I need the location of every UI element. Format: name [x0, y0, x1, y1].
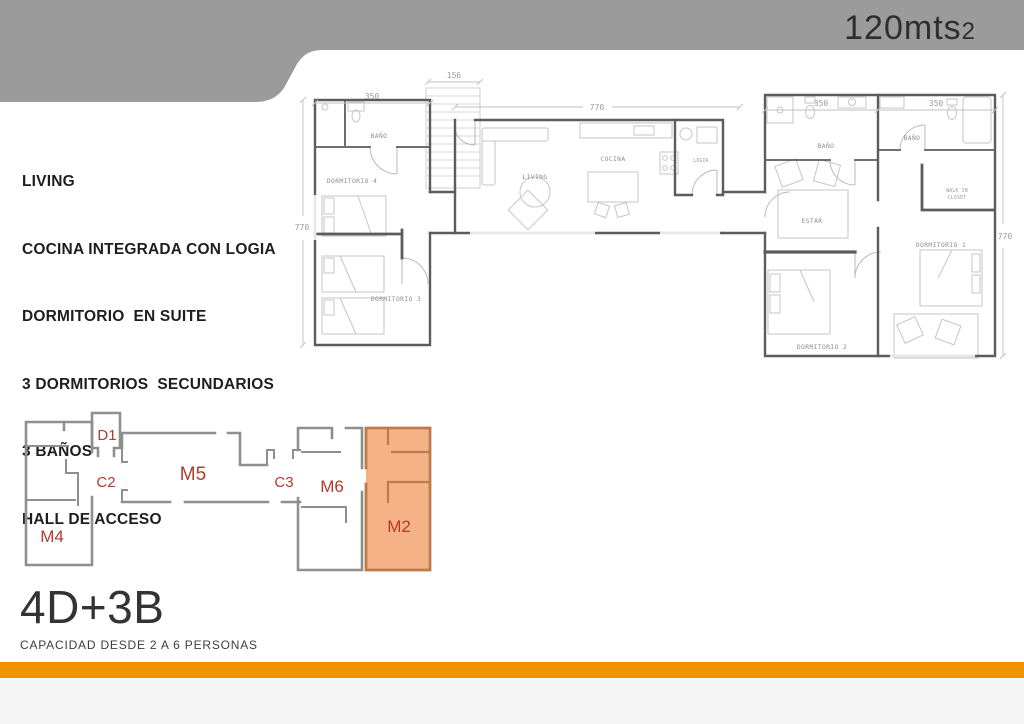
unit-type-title: 4D+3B	[20, 583, 258, 631]
module-label-c2: C2	[96, 474, 115, 491]
floor-plan: BAÑO DORMITORIO 4 DORMITORIO 3 LIVING CO…	[280, 60, 1024, 380]
room-label-cocina: COCINA	[600, 156, 625, 163]
entry-stairs	[426, 88, 480, 188]
room-label-logia: LOGIA	[693, 158, 708, 164]
furniture	[322, 97, 991, 358]
dim-entry-width: 156	[447, 71, 462, 80]
dim-center-width: 770	[590, 103, 605, 112]
area-value: 120mts	[844, 9, 962, 47]
dim-left-height: 770	[295, 223, 310, 232]
key-plan-walls	[26, 413, 362, 570]
area-label: 120mts2	[844, 11, 976, 45]
brochure-page: 120mts2 LIVING COCINA INTEGRADA CON LOGI…	[0, 0, 1024, 724]
windows	[315, 195, 975, 356]
room-labels: BAÑO DORMITORIO 4 DORMITORIO 3 LIVING CO…	[327, 131, 968, 351]
feature-line: 3 DORMITORIOS SECUNDARIOS	[22, 374, 276, 397]
dim-left-width: 350	[365, 92, 380, 101]
module-label-c3: C3	[274, 474, 293, 491]
room-label-dorm4: DORMITORIO 4	[327, 178, 377, 185]
room-label-dorm3: DORMITORIO 3	[371, 296, 421, 303]
footer-strip	[0, 678, 1024, 724]
room-label-bano4: BAÑO	[371, 131, 388, 140]
module-label-m5: M5	[180, 464, 206, 485]
module-label-m4: M4	[40, 527, 64, 546]
room-label-living: LIVING	[522, 174, 547, 181]
room-label-estar: ESTAR	[802, 218, 823, 225]
dim-right-height: 770	[998, 232, 1013, 241]
dim-right-width-b: 350	[929, 99, 944, 108]
room-label-bano-d1: BAÑO	[904, 133, 921, 142]
feature-line: LIVING	[22, 171, 276, 194]
room-label-dorm2: DORMITORIO 2	[797, 344, 847, 351]
feature-line: COCINA INTEGRADA CON LOGIA	[22, 239, 276, 262]
room-label-walkin-1: WALK IN	[946, 188, 968, 194]
door-arcs	[370, 120, 925, 284]
footer-accent-bar	[0, 662, 1024, 678]
dimension-labels: 350 156 770 350 350 770 770	[295, 71, 1013, 241]
feature-line: DORMITORIO EN SUITE	[22, 306, 276, 329]
key-plan: M4 D1 C2 M5 C3 M6 M2	[10, 405, 450, 590]
area-exponent: 2	[962, 18, 976, 45]
capacity-text: CAPACIDAD DESDE 2 A 6 PERSONAS	[20, 638, 258, 652]
room-label-dorm1: DORMITORIO 1	[916, 242, 966, 249]
module-label-m6: M6	[320, 477, 344, 496]
room-label-bano-estar: BAÑO	[818, 141, 835, 150]
unit-summary: 4D+3B CAPACIDAD DESDE 2 A 6 PERSONAS	[20, 583, 258, 652]
dim-right-width-a: 350	[814, 99, 829, 108]
module-label-d1: D1	[97, 427, 116, 444]
module-label-m2: M2	[387, 517, 411, 536]
module-m2-highlight	[366, 428, 430, 570]
walls	[315, 95, 995, 356]
key-plan-labels: M4 D1 C2 M5 C3 M6 M2	[40, 427, 411, 546]
room-label-walkin-2: CLOSET	[948, 195, 967, 201]
